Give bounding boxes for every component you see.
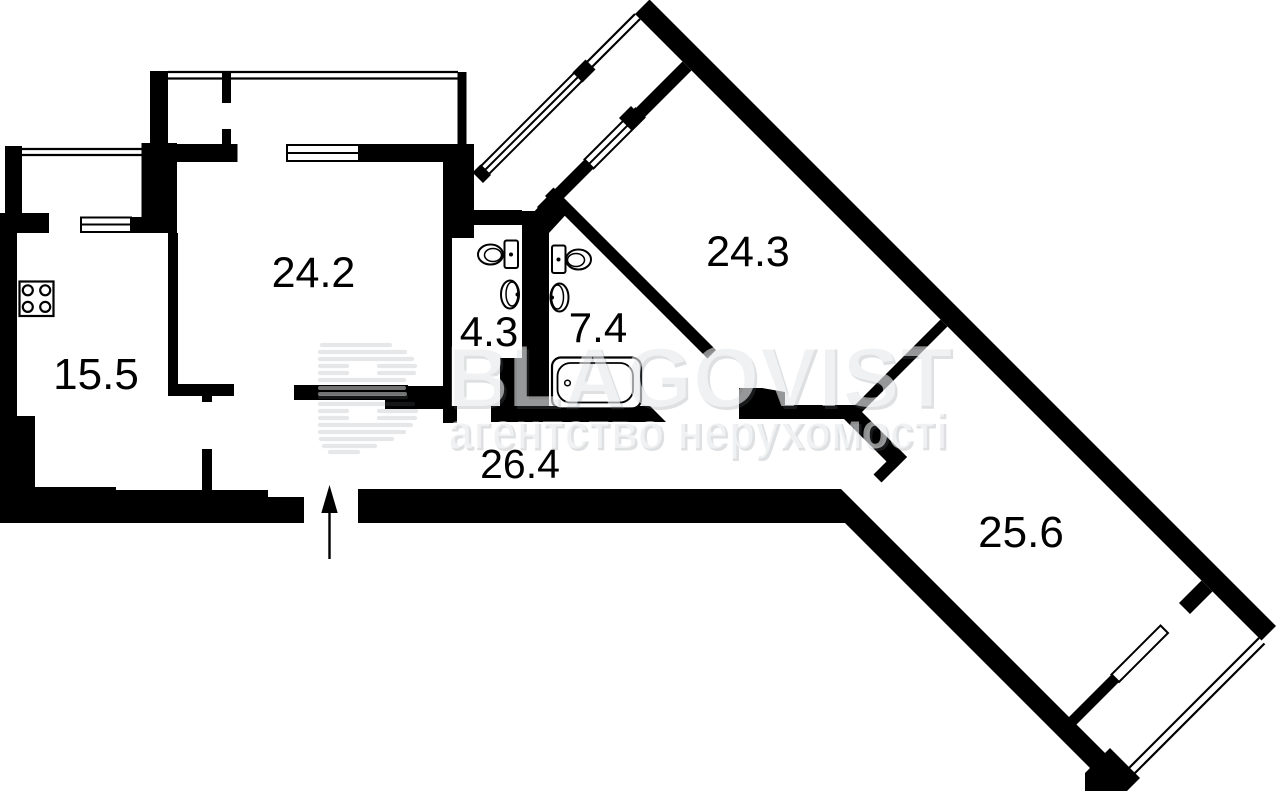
svg-text:4.3: 4.3 — [460, 308, 518, 355]
svg-text:24.2: 24.2 — [272, 249, 356, 297]
svg-text:26.4: 26.4 — [480, 441, 560, 487]
svg-text:15.5: 15.5 — [53, 350, 139, 399]
svg-text:24.3: 24.3 — [706, 228, 790, 276]
svg-text:7.4: 7.4 — [569, 304, 627, 351]
svg-text:25.6: 25.6 — [978, 508, 1064, 557]
